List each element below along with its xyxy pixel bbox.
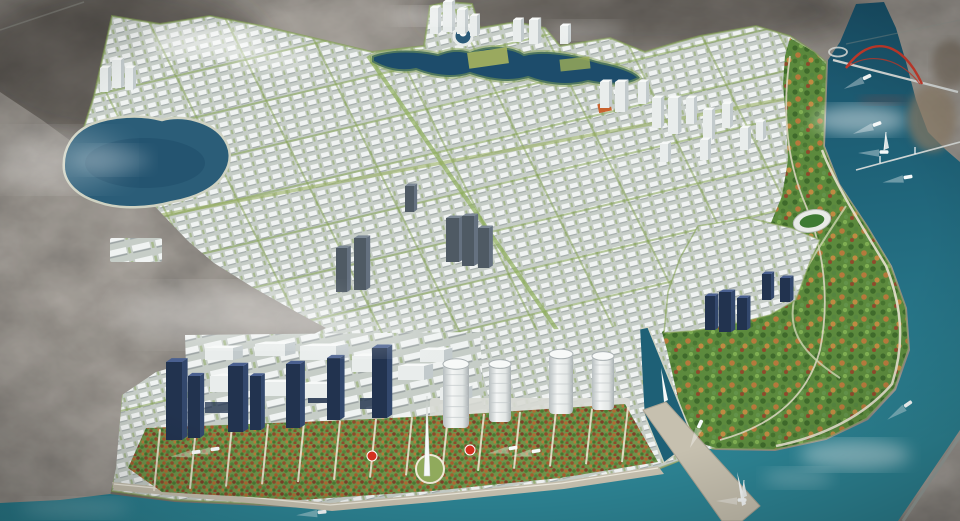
vignette: [0, 0, 960, 521]
masterplan-aerial-scene: Aerial 3D rendering of a riverfront urba…: [0, 0, 960, 521]
city-masterplan-render: Aerial 3D rendering of a riverfront urba…: [0, 0, 960, 521]
